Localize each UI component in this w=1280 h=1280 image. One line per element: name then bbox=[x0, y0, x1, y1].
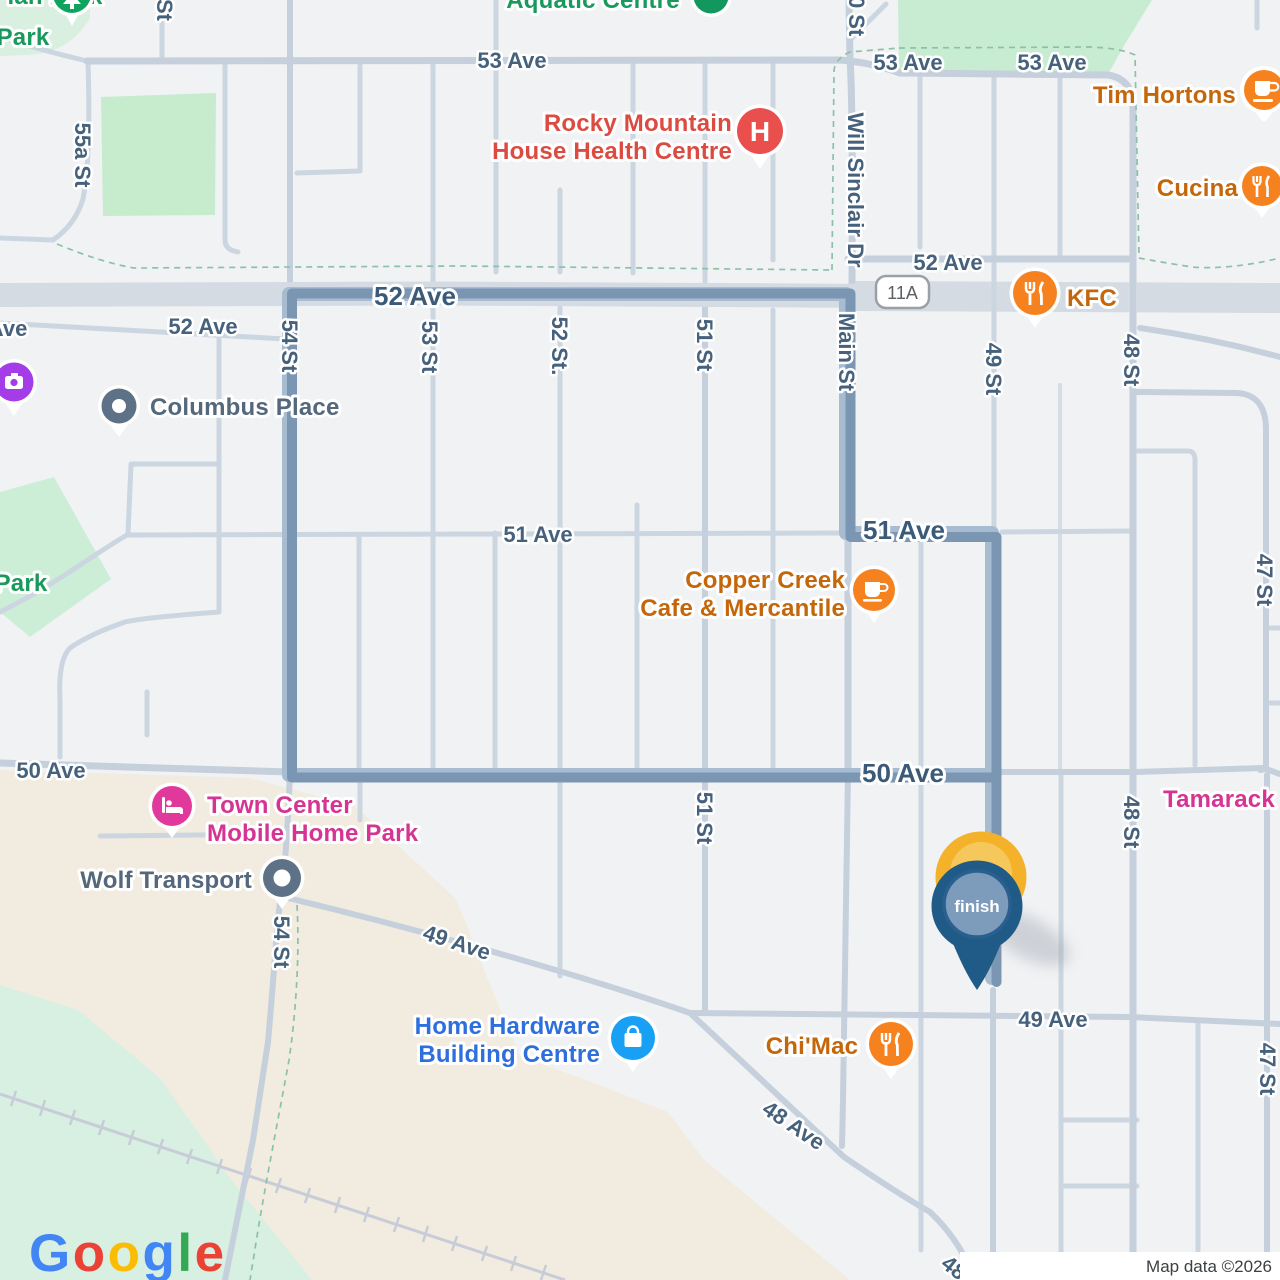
svg-text:Aquatic Centre: Aquatic Centre bbox=[506, 0, 680, 14]
svg-text:Tamarack: Tamarack bbox=[1163, 786, 1275, 813]
svg-text:St: St bbox=[152, 0, 177, 22]
svg-text:48 St: 48 St bbox=[1119, 334, 1144, 387]
svg-text:53 St: 53 St bbox=[417, 321, 442, 374]
svg-text:52 Ave: 52 Ave bbox=[0, 316, 27, 341]
svg-text:51 St: 51 St bbox=[692, 792, 717, 845]
svg-text:KFC: KFC bbox=[1067, 285, 1117, 312]
svg-text:53 Ave: 53 Ave bbox=[477, 48, 546, 73]
svg-text:Copper Creek: Copper Creek bbox=[685, 567, 845, 594]
svg-text:Google: Google bbox=[29, 1224, 227, 1280]
svg-text:Map data ©2026: Map data ©2026 bbox=[1146, 1257, 1272, 1276]
svg-text:Will Sinclair Dr: Will Sinclair Dr bbox=[843, 112, 868, 268]
svg-text:Park: Park bbox=[0, 24, 50, 51]
svg-text:Rocky Mountain: Rocky Mountain bbox=[544, 110, 732, 137]
svg-text:finish: finish bbox=[954, 897, 999, 916]
svg-text:Home Hardware: Home Hardware bbox=[415, 1013, 600, 1040]
svg-text:11A: 11A bbox=[887, 283, 918, 303]
svg-text:54 St: 54 St bbox=[269, 916, 294, 969]
svg-text:51 Ave: 51 Ave bbox=[863, 515, 945, 545]
svg-text:H: H bbox=[750, 116, 770, 147]
svg-text:53 Ave: 53 Ave bbox=[873, 50, 942, 75]
svg-text:47 St: 47 St bbox=[1255, 1043, 1280, 1096]
svg-text:52 Ave: 52 Ave bbox=[168, 314, 237, 339]
svg-text:49 St: 49 St bbox=[981, 343, 1006, 396]
svg-text:50 St: 50 St bbox=[844, 0, 869, 37]
svg-text:48 St: 48 St bbox=[1119, 796, 1144, 849]
svg-text:53 Ave: 53 Ave bbox=[1017, 50, 1086, 75]
svg-text:Cucina: Cucina bbox=[1157, 175, 1239, 202]
svg-text:Chi'Mac: Chi'Mac bbox=[766, 1033, 858, 1060]
svg-text:47 St: 47 St bbox=[1252, 554, 1277, 607]
svg-text:Town Center: Town Center bbox=[207, 792, 353, 819]
svg-text:Tim Hortons: Tim Hortons bbox=[1093, 82, 1236, 109]
svg-text:Building Centre: Building Centre bbox=[418, 1041, 600, 1068]
svg-text:50 Ave: 50 Ave bbox=[862, 758, 944, 788]
svg-text:Cafe & Mercantile: Cafe & Mercantile bbox=[640, 595, 845, 622]
svg-text:52 St.: 52 St. bbox=[547, 317, 572, 376]
svg-text:52 Ave: 52 Ave bbox=[913, 250, 982, 275]
svg-text:Wolf Transport: Wolf Transport bbox=[80, 867, 252, 894]
svg-text:51 St: 51 St bbox=[692, 319, 717, 372]
svg-text:Park: Park bbox=[0, 570, 48, 597]
svg-text:Mobile Home Park: Mobile Home Park bbox=[207, 820, 419, 847]
svg-text:Columbus Place: Columbus Place bbox=[150, 394, 340, 421]
svg-text:50 Ave: 50 Ave bbox=[16, 758, 85, 783]
svg-text:52 Ave: 52 Ave bbox=[374, 281, 456, 311]
svg-text:55a St: 55a St bbox=[70, 123, 95, 188]
svg-text:House Health Centre: House Health Centre bbox=[492, 138, 732, 165]
svg-text:49 Ave: 49 Ave bbox=[1018, 1007, 1087, 1032]
svg-text:Main St: Main St bbox=[834, 313, 859, 392]
svg-text:54 St: 54 St bbox=[277, 320, 302, 373]
svg-text:51 Ave: 51 Ave bbox=[503, 522, 572, 547]
